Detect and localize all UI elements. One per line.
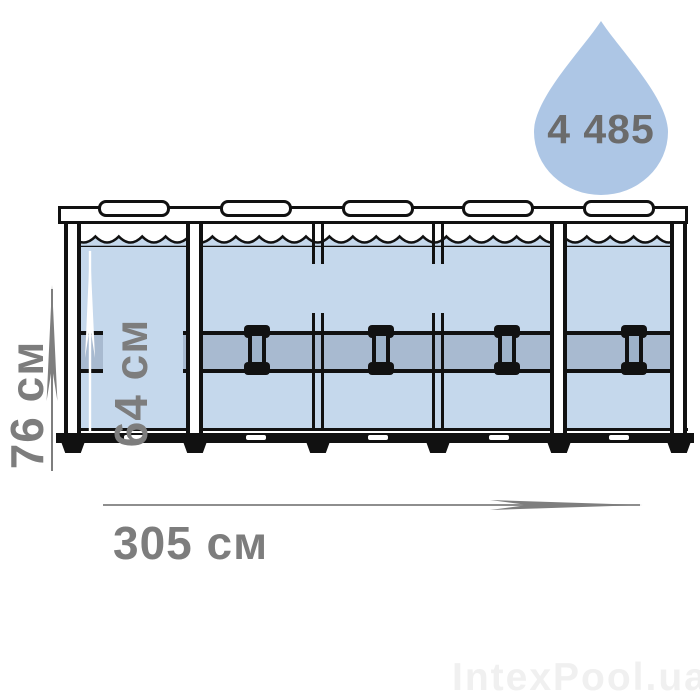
length-arrow-icon (100, 497, 648, 513)
rail-sleeve (462, 200, 534, 217)
frame-height-label: 76 см (3, 335, 51, 475)
pool-leg (550, 220, 567, 435)
pool-leg (64, 220, 81, 435)
base-pad (368, 435, 388, 440)
pool-leg-back (312, 224, 324, 264)
pool-leg-back (312, 313, 324, 430)
rail-sleeve (98, 200, 170, 217)
pool-foot (182, 443, 208, 453)
rail-sleeve (342, 200, 414, 217)
pool-leg-back (432, 313, 444, 430)
band-connector (244, 325, 270, 375)
pool-foot (425, 443, 451, 453)
pool-foot (305, 443, 331, 453)
water-height-label: 64 см (107, 313, 155, 453)
band-connector (494, 325, 520, 375)
band-connector (368, 325, 394, 375)
water-surface (72, 233, 681, 247)
pool-foot (546, 443, 572, 453)
length-label: 305 см (113, 516, 268, 570)
base-pad (246, 435, 266, 440)
pool-foot (60, 443, 86, 453)
rail-sleeve (220, 200, 292, 217)
pool-leg (670, 220, 687, 435)
pool-leg-back (432, 224, 444, 264)
pool-diagram: 4 485 (0, 0, 700, 700)
pool-foot (666, 443, 692, 453)
watermark: IntexPool.ua (452, 656, 700, 700)
volume-label: 4 485 (539, 106, 663, 153)
band-connector (621, 325, 647, 375)
pool-leg (186, 220, 203, 435)
liner-bottom-edge (64, 428, 688, 431)
base-pad (489, 435, 509, 440)
base-pad (609, 435, 629, 440)
water-height-arrow-icon (82, 246, 98, 434)
rail-sleeve (583, 200, 655, 217)
